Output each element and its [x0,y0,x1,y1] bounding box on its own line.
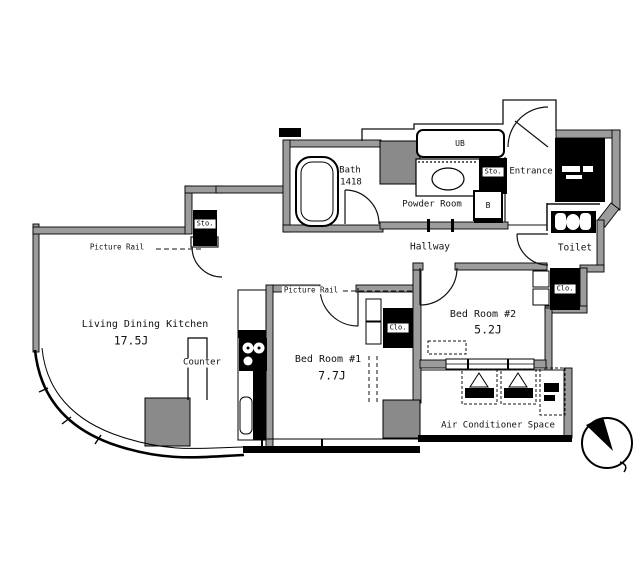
closet-label-bedroom1: Clo. [388,324,409,333]
ac-unit-icon [462,369,497,404]
window-mullion [321,439,323,447]
storage-label-ldk: Sto. [195,220,216,229]
washbasin-icon [416,159,480,196]
closet-label-bedroom2: Clo. [555,285,576,294]
wall [33,227,187,234]
meter-box-shaft [555,138,605,202]
sink-icon [240,397,252,434]
hallway-label: Hallway [410,242,450,252]
sliding-door-stop [427,219,430,232]
wall [33,224,39,352]
wall [380,222,508,229]
ac-unit-icon [501,369,536,404]
dashed-fixture-bedroom2 [428,341,466,354]
b-box-label: B [486,202,491,210]
unit-bath-label: UB [455,140,465,148]
bedroom2-room-label: Bed Room #2 [450,310,516,320]
bedroom2-door-arc [420,268,457,305]
sliding-door-stop [451,219,454,232]
stove-icon [239,338,267,371]
ldk-door-arc [192,247,222,277]
pipe-space-pillar [380,141,420,184]
storage-label-powder: Sto. [483,168,504,177]
toilet-door-arc [517,234,548,265]
wall [283,225,383,232]
kitchen-divider [253,371,266,440]
powder-room-label: Powder Room [402,201,462,210]
ac-space-bottom-wall [418,435,572,442]
ldk-pillar [145,398,190,446]
window-mullion [467,359,469,369]
wall [266,285,273,449]
toilet-label: Toilet [558,243,592,253]
picture-rail-label-ldk: Picture Rail [88,243,146,251]
wall [612,130,620,210]
floor-plan: Living Dining Kitchen 17.5J Counter Bed … [0,0,640,569]
bath-size-label: 1418 [340,179,362,188]
bedroom1-window-frame [243,446,420,453]
wall [597,220,604,270]
window-mullion [507,359,509,369]
entrance-door-arc [508,107,548,147]
toilet-icon [551,211,596,233]
wall [413,263,423,270]
entrance-door-leaf [515,121,548,147]
closet-door-panel [366,299,381,321]
bath-room-label: Bath [339,167,361,176]
bedroom1-size-label: 7.7J [318,370,346,382]
ldk-room-label: Living Dining Kitchen [82,320,208,330]
bedroom1-room-label: Bed Room #1 [295,355,361,365]
wall [455,263,547,270]
wall [283,140,290,232]
bathtub-icon [296,157,338,226]
closet-door-panel [366,322,381,344]
wall [285,140,381,147]
ldk-size-label: 17.5J [114,335,149,347]
picture-rail-label-bedroom1: Picture Rail [282,286,340,294]
kitchen-hatch [238,330,266,338]
ac-unit-slot-icon [540,368,565,415]
counter-outline [188,338,207,400]
kitchen [238,290,267,440]
entrance-label: Entrance [509,168,552,177]
compass-icon [582,417,632,472]
closet-door-panel [533,289,549,305]
wall [556,130,620,138]
closet-door-panel [533,271,549,287]
wall-black-corner [279,128,301,137]
bath-door-arc [345,190,379,224]
wall [580,268,587,312]
ac-space-label: Air Conditioner Space [441,422,555,431]
wall [216,186,288,193]
counter-label: Counter [181,359,223,368]
bedroom1-pillar [383,400,420,438]
bedroom2-size-label: 5.2J [474,324,502,336]
